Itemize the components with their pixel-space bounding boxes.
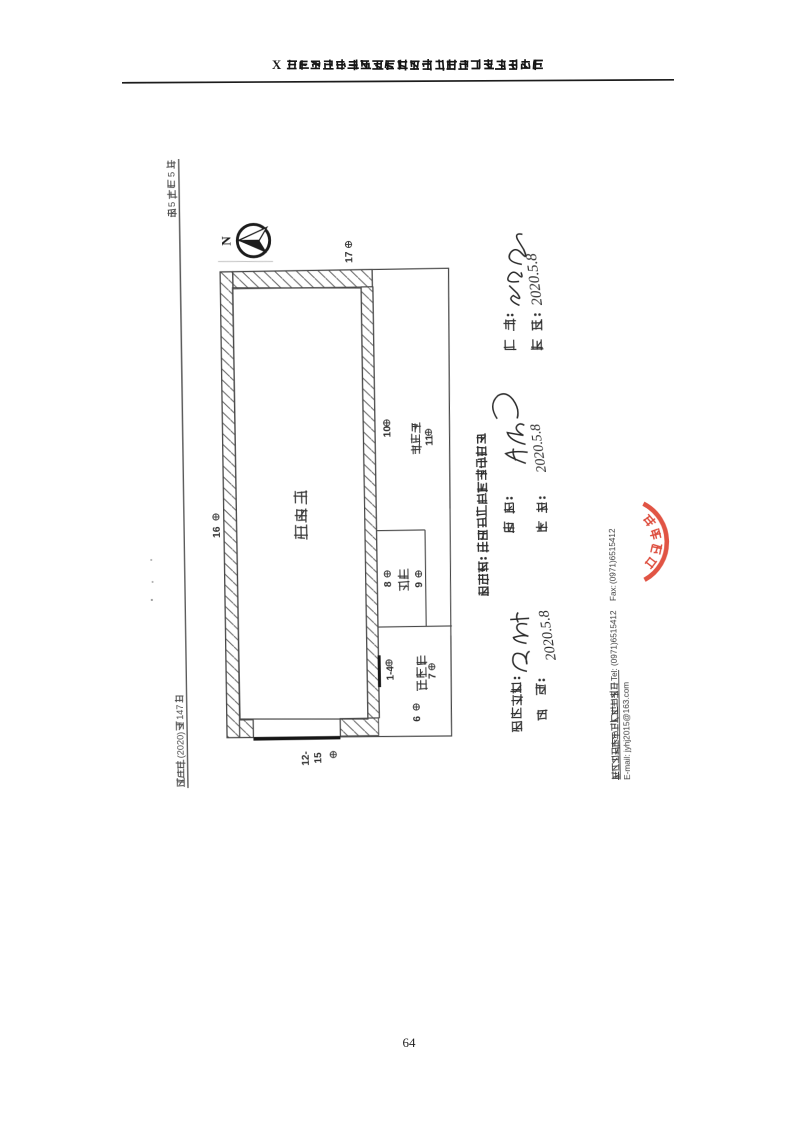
svg-text:147: 147	[175, 704, 185, 719]
svg-text:64: 64	[403, 1035, 417, 1050]
svg-text:E-mail: jyhj2015@163.com: E-mail: jyhj2015@163.com	[621, 682, 631, 780]
svg-text:7: 7	[427, 673, 438, 679]
svg-text:9: 9	[414, 582, 425, 588]
svg-text:11: 11	[424, 435, 435, 446]
svg-text:Fax:: Fax:	[609, 585, 618, 601]
svg-text:12-: 12-	[301, 751, 312, 766]
svg-text:(2020): (2020)	[175, 732, 185, 759]
svg-text:10: 10	[382, 426, 393, 438]
svg-text:(0971)6515412: (0971)6515412	[608, 528, 618, 584]
svg-text:X: X	[272, 58, 282, 72]
svg-text:(0971)6515412: (0971)6515412	[609, 610, 619, 666]
svg-text:Tel:: Tel:	[610, 668, 619, 681]
svg-text:17: 17	[344, 251, 355, 263]
svg-text:8: 8	[383, 581, 394, 587]
svg-text:5: 5	[167, 202, 178, 207]
svg-text:6: 6	[412, 716, 423, 722]
svg-text:1-4: 1-4	[385, 666, 396, 681]
svg-text:5: 5	[167, 172, 178, 177]
svg-text:N: N	[218, 236, 233, 246]
svg-text:16: 16	[212, 526, 223, 538]
svg-text:15: 15	[313, 752, 324, 764]
